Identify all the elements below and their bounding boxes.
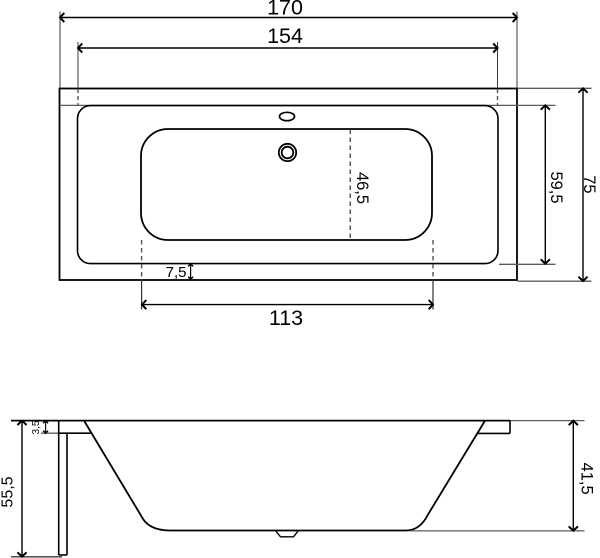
svg-text:170: 170	[267, 0, 303, 19]
svg-text:7,5: 7,5	[166, 264, 187, 281]
svg-text:59,5: 59,5	[547, 171, 565, 203]
svg-text:41,5: 41,5	[578, 463, 596, 495]
svg-text:113: 113	[269, 306, 303, 330]
svg-text:3,5: 3,5	[31, 420, 42, 434]
svg-text:46,5: 46,5	[353, 172, 371, 204]
svg-text:154: 154	[267, 24, 303, 48]
svg-text:55,5: 55,5	[0, 476, 17, 507]
svg-text:75: 75	[580, 175, 598, 193]
